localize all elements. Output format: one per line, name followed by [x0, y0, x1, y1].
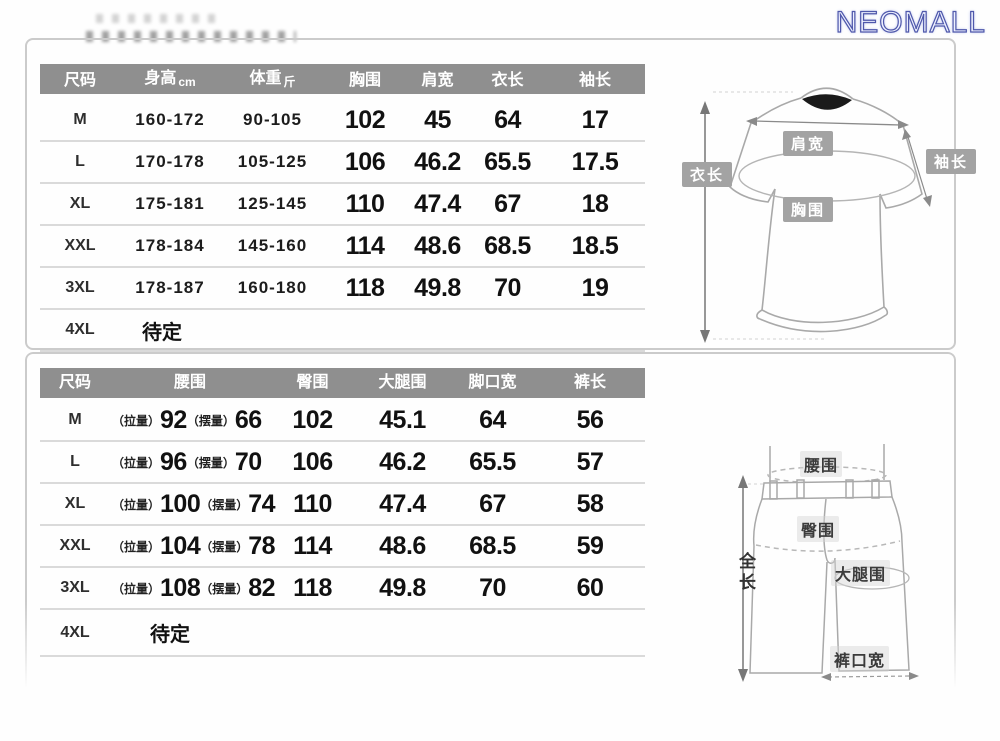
size-value: L [40, 153, 120, 171]
weight-value: 90-105 [220, 110, 325, 130]
leg-opening-value: 70 [450, 574, 535, 603]
hip-value: 114 [270, 532, 355, 561]
hip-value: 118 [270, 574, 355, 603]
weight-value: 125-145 [220, 194, 325, 214]
weight-value: 160-180 [220, 278, 325, 298]
height-value: 160-172 [120, 110, 220, 130]
pending-note: 待定 [110, 618, 645, 647]
header-thigh: 大腿围 [355, 368, 450, 398]
shoulder-value: 49.8 [405, 274, 470, 303]
brand-logo: NEOMALL [836, 6, 986, 40]
size-chart-image: NEOMALL 尺码 身高cm 体重斤 胸围 肩宽 衣长 袖长 M 160-17… [0, 0, 1000, 741]
header-height: 身高cm [120, 64, 220, 97]
table-row: XL 175-181 125-145 110 47.4 67 18 [40, 184, 645, 226]
pants-length-value: 58 [535, 490, 645, 519]
pants-table-rows: M （拉量）92（摆量）66 102 45.1 64 56 L （拉量）96（摆… [40, 400, 645, 657]
header-hip: 臀围 [270, 368, 355, 398]
shirt-length-label: 衣长 [682, 162, 732, 187]
shoulder-value: 47.4 [405, 190, 470, 219]
height-value: 170-178 [120, 152, 220, 172]
table-row: 3XL （拉量）108（摆量）82 118 49.8 70 60 [40, 568, 645, 610]
weight-value: 145-160 [220, 236, 325, 256]
chest-value: 106 [325, 148, 405, 177]
pants-length-value: 56 [535, 406, 645, 435]
hip-value: 110 [270, 490, 355, 519]
thigh-value: 47.4 [355, 490, 450, 519]
sleeve-value: 18 [545, 190, 645, 219]
size-value: 4XL [40, 624, 110, 642]
leg-opening-value: 65.5 [450, 448, 535, 477]
size-value: L [40, 453, 110, 471]
thigh-value: 46.2 [355, 448, 450, 477]
height-value: 175-181 [120, 194, 220, 214]
shoulder-value: 46.2 [405, 148, 470, 177]
chest-value: 118 [325, 274, 405, 303]
header-shoulder: 肩宽 [405, 66, 470, 96]
size-value: 4XL [40, 321, 120, 339]
header-chest: 胸围 [325, 66, 405, 96]
shoulder-width-label: 肩宽 [783, 131, 833, 156]
shoulder-value: 45 [405, 106, 470, 135]
shirt-table-rows: M 160-172 90-105 102 45 64 17 L 170-178 … [40, 100, 645, 352]
leg-opening-value: 67 [450, 490, 535, 519]
size-value: 3XL [40, 279, 120, 297]
leg-opening-value: 68.5 [450, 532, 535, 561]
sleeve-value: 17.5 [545, 148, 645, 177]
length-value: 65.5 [470, 148, 545, 177]
header-size: 尺码 [40, 66, 120, 96]
header-sleeve: 袖长 [545, 66, 645, 96]
pull-label: （拉量） [112, 412, 160, 429]
chest-value: 110 [325, 190, 405, 219]
pending-note: 待定 [120, 316, 645, 345]
leg-opening-value: 64 [450, 406, 535, 435]
table-row-pending: 4XL 待定 [40, 310, 645, 352]
hip-value: 102 [270, 406, 355, 435]
header-weight: 体重斤 [220, 64, 325, 97]
size-value: M [40, 411, 110, 429]
size-value: XXL [40, 237, 120, 255]
chest-girth-label: 胸围 [783, 197, 833, 222]
size-value: XL [40, 495, 110, 513]
size-value: 3XL [40, 579, 110, 597]
leg-opening-width-label: 裤口宽 [830, 646, 889, 672]
table-row: XXL （拉量）104（摆量）78 114 48.6 68.5 59 [40, 526, 645, 568]
header-size: 尺码 [40, 368, 110, 398]
hip-girth-label: 臀围 [797, 516, 839, 542]
waist-value: （拉量）108（摆量）82 [110, 574, 270, 603]
hip-value: 106 [270, 448, 355, 477]
size-value: XXL [40, 537, 110, 555]
size-value: M [40, 111, 120, 129]
length-value: 67 [470, 190, 545, 219]
waist-girth-label: 腰围 [800, 451, 842, 477]
header-waist: 腰围 [110, 368, 270, 398]
thigh-value: 48.6 [355, 532, 450, 561]
sleeve-value: 19 [545, 274, 645, 303]
pants-length-value: 57 [535, 448, 645, 477]
table-row: L 170-178 105-125 106 46.2 65.5 17.5 [40, 142, 645, 184]
pants-table-header: 尺码 腰围 臀围 大腿围 脚口宽 裤长 [40, 368, 645, 398]
size-value: XL [40, 195, 120, 213]
height-value: 178-187 [120, 278, 220, 298]
waist-value: （拉量）92（摆量）66 [110, 406, 270, 435]
cropped-text-artifact [96, 14, 216, 23]
shirt-table-header: 尺码 身高cm 体重斤 胸围 肩宽 衣长 袖长 [40, 64, 645, 94]
height-value: 178-184 [120, 236, 220, 256]
length-value: 64 [470, 106, 545, 135]
table-row: 3XL 178-187 160-180 118 49.8 70 19 [40, 268, 645, 310]
swing-label: （摆量） [187, 412, 235, 429]
table-row: M （拉量）92（摆量）66 102 45.1 64 56 [40, 400, 645, 442]
table-row: L （拉量）96（摆量）70 106 46.2 65.5 57 [40, 442, 645, 484]
header-length: 衣长 [470, 66, 545, 96]
table-row: M 160-172 90-105 102 45 64 17 [40, 100, 645, 142]
sleeve-length-label: 袖长 [926, 149, 976, 174]
header-pants-length: 裤长 [535, 368, 645, 398]
table-row: XXL 178-184 145-160 114 48.6 68.5 18.5 [40, 226, 645, 268]
thigh-value: 49.8 [355, 574, 450, 603]
chest-value: 114 [325, 232, 405, 261]
waist-value: （拉量）100（摆量）74 [110, 490, 270, 519]
table-row: XL （拉量）100（摆量）74 110 47.4 67 58 [40, 484, 645, 526]
weight-unit: 斤 [284, 75, 296, 89]
shoulder-value: 48.6 [405, 232, 470, 261]
thigh-girth-label: 大腿围 [831, 560, 890, 586]
weight-value: 105-125 [220, 152, 325, 172]
sleeve-value: 18.5 [545, 232, 645, 261]
sleeve-value: 17 [545, 106, 645, 135]
length-value: 70 [470, 274, 545, 303]
length-value: 68.5 [470, 232, 545, 261]
pants-length-value: 59 [535, 532, 645, 561]
table-row-pending: 4XL 待定 [40, 610, 645, 657]
height-unit: cm [178, 75, 195, 89]
pants-length-value: 60 [535, 574, 645, 603]
full-length-label: 全长 [733, 552, 758, 594]
chest-value: 102 [325, 106, 405, 135]
header-leg-opening: 脚口宽 [450, 368, 535, 398]
waist-value: （拉量）104（摆量）78 [110, 532, 270, 561]
thigh-value: 45.1 [355, 406, 450, 435]
waist-value: （拉量）96（摆量）70 [110, 448, 270, 477]
